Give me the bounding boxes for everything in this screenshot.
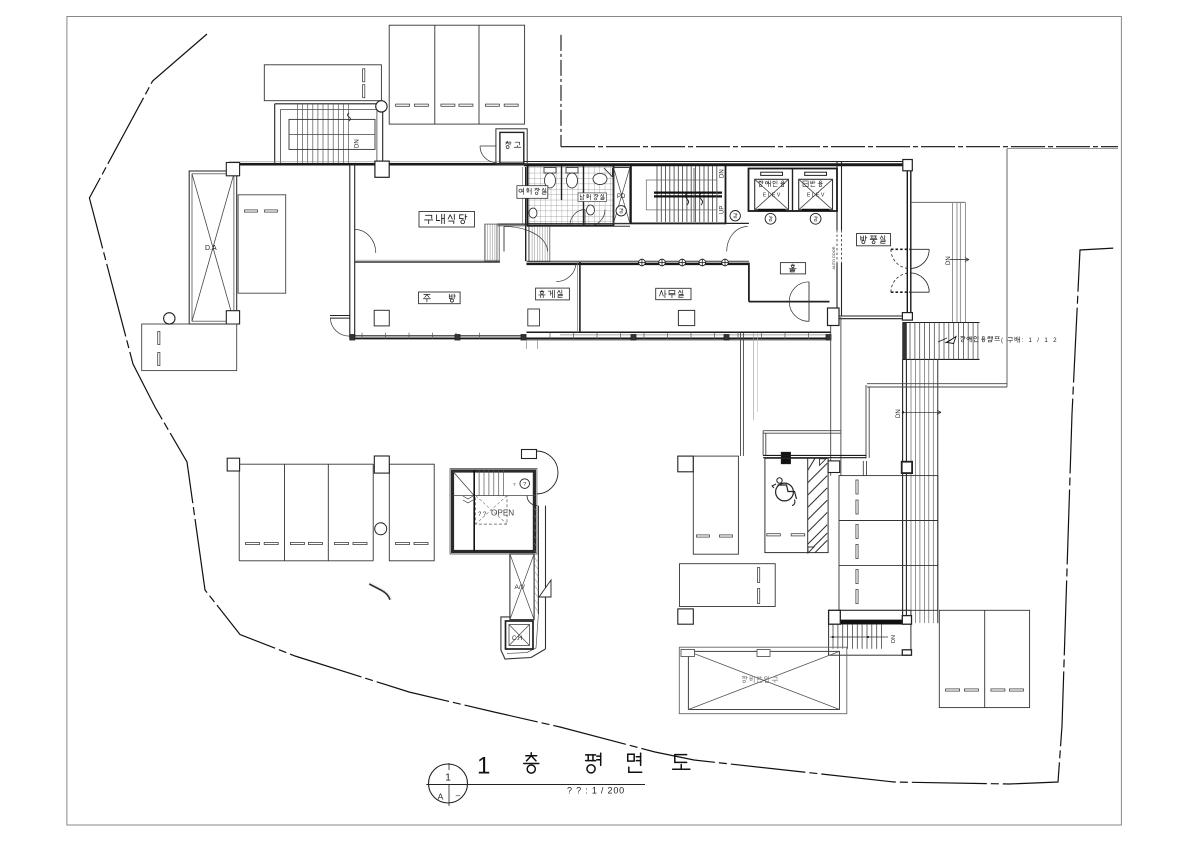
svg-text:A: A xyxy=(438,792,444,802)
svg-text:DN: DN xyxy=(896,409,902,418)
svg-text:AUTO DOOR: AUTO DOOR xyxy=(832,246,836,269)
svg-text:DN: DN xyxy=(946,256,952,265)
svg-text:DN: DN xyxy=(720,169,726,178)
svg-text:(: ( xyxy=(1001,338,1003,344)
svg-text:A/V: A/V xyxy=(515,584,526,591)
svg-text:? ?: ? ? xyxy=(478,512,487,518)
svg-text:1: 1 xyxy=(445,773,451,784)
svg-text:PD: PD xyxy=(617,194,626,200)
svg-text:UP: UP xyxy=(720,206,726,214)
svg-text:DN: DN xyxy=(891,635,897,643)
svg-text:1: 1 xyxy=(477,753,490,780)
svg-text:C.H: C.H xyxy=(512,636,522,642)
svg-text:? ? : 1 / 200: ? ? : 1 / 200 xyxy=(567,786,625,796)
svg-text:E L E V: E L E V xyxy=(807,193,825,199)
svg-text:: 1 / 1 2: : 1 / 1 2 xyxy=(1022,337,1059,344)
svg-text:–: – xyxy=(456,791,461,800)
svg-text:OPEN: OPEN xyxy=(491,509,514,518)
svg-text:E L E V: E L E V xyxy=(763,193,781,199)
svg-text:DN: DN xyxy=(355,139,361,148)
svg-text:D.A: D.A xyxy=(205,245,217,252)
svg-text:?: ? xyxy=(523,482,526,488)
